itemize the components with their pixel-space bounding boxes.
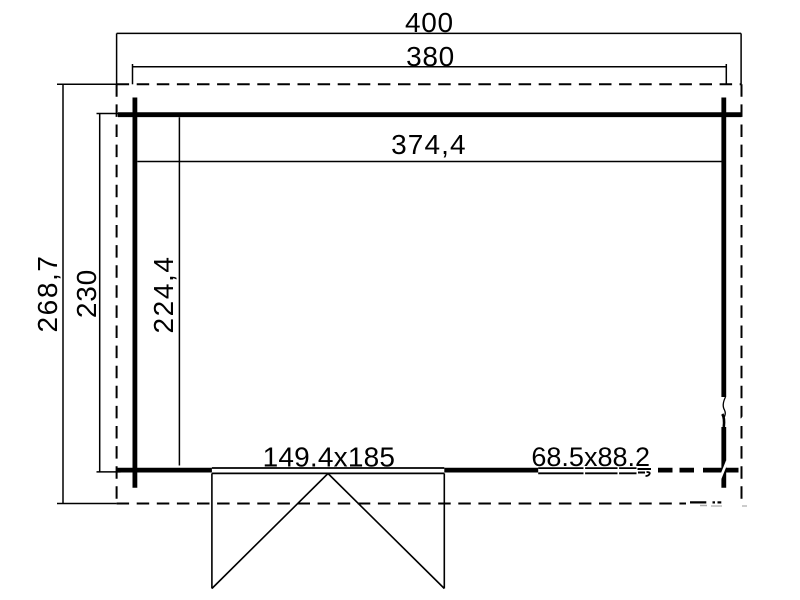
svg-text:230: 230 — [71, 269, 102, 318]
svg-text:268,7: 268,7 — [32, 254, 63, 332]
svg-text:380: 380 — [406, 41, 455, 72]
svg-text:374,4: 374,4 — [391, 129, 467, 160]
svg-text:68.5x88.2: 68.5x88.2 — [531, 442, 650, 472]
svg-text:224,4: 224,4 — [148, 255, 179, 333]
svg-text:149.4x185: 149.4x185 — [263, 441, 396, 472]
svg-text:400: 400 — [405, 7, 454, 38]
